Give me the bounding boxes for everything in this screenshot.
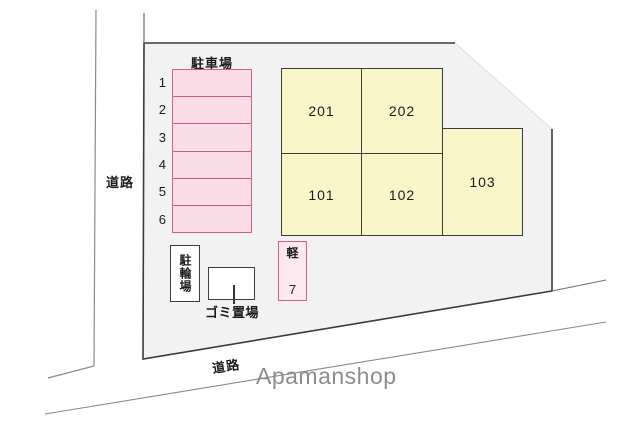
parking-space-3 xyxy=(173,124,251,151)
road-bottom-inner-line xyxy=(552,280,606,291)
unit-number: 201 xyxy=(308,103,334,119)
unit-102: 102 xyxy=(361,153,443,236)
parking-space-number: 1 xyxy=(146,69,168,96)
unit-number: 103 xyxy=(469,174,495,190)
parking-space-number: 3 xyxy=(146,124,168,151)
parking-space-2 xyxy=(173,97,251,124)
bicycle-parking-box: 駐輪場 xyxy=(170,245,200,302)
parking-space-block xyxy=(172,69,252,233)
parking-space-number: 4 xyxy=(146,151,168,178)
bicycle-parking-label: 駐輪場 xyxy=(179,254,191,293)
unit-202: 202 xyxy=(361,68,443,154)
parking-space-number: 2 xyxy=(146,96,168,123)
parking-space-number: 6 xyxy=(146,206,168,233)
unit-201: 201 xyxy=(281,68,362,154)
kei-parking-label: 軽 xyxy=(286,244,298,261)
unit-number: 202 xyxy=(389,103,415,119)
parking-space-5 xyxy=(173,179,251,206)
garbage-area-box xyxy=(208,267,255,300)
parking-space-numbers: 1 2 3 4 5 6 xyxy=(146,69,168,233)
parking-space-4 xyxy=(173,152,251,179)
kei-parking-number: 7 xyxy=(289,282,296,297)
parking-space-1 xyxy=(173,70,251,97)
site-plan-diagram: 道路 道路 駐車場 1 2 3 4 5 6 201 202 101 102 10… xyxy=(0,0,640,427)
unit-number: 102 xyxy=(389,187,415,203)
unit-number: 101 xyxy=(308,187,334,203)
road-left-outer-line xyxy=(48,10,96,378)
parking-space-number: 5 xyxy=(146,178,168,205)
unit-103: 103 xyxy=(442,128,523,236)
kei-parking-box: 軽 7 xyxy=(278,241,307,301)
parking-space-6 xyxy=(173,206,251,232)
garbage-area-label: ゴミ置場 xyxy=(196,302,268,321)
watermark: Apamanshop xyxy=(256,363,396,390)
unit-101: 101 xyxy=(281,153,362,236)
road-label-left: 道路 xyxy=(97,172,143,191)
